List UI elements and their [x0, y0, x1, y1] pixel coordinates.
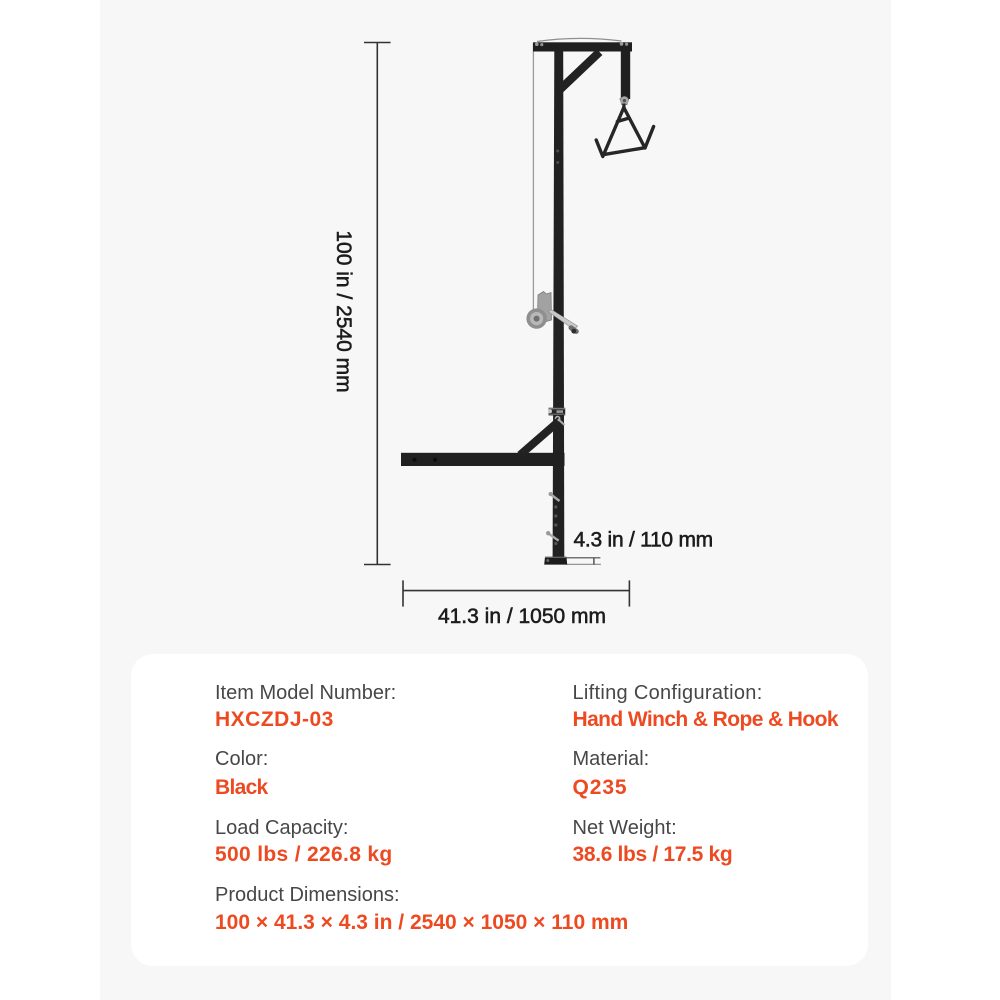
svg-text:4.3 in / 110 mm: 4.3 in / 110 mm [574, 528, 713, 551]
svg-text:41.3 in / 1050 mm: 41.3 in / 1050 mm [438, 605, 606, 628]
svg-text:100 in / 2540 mm: 100 in / 2540 mm [332, 230, 355, 392]
